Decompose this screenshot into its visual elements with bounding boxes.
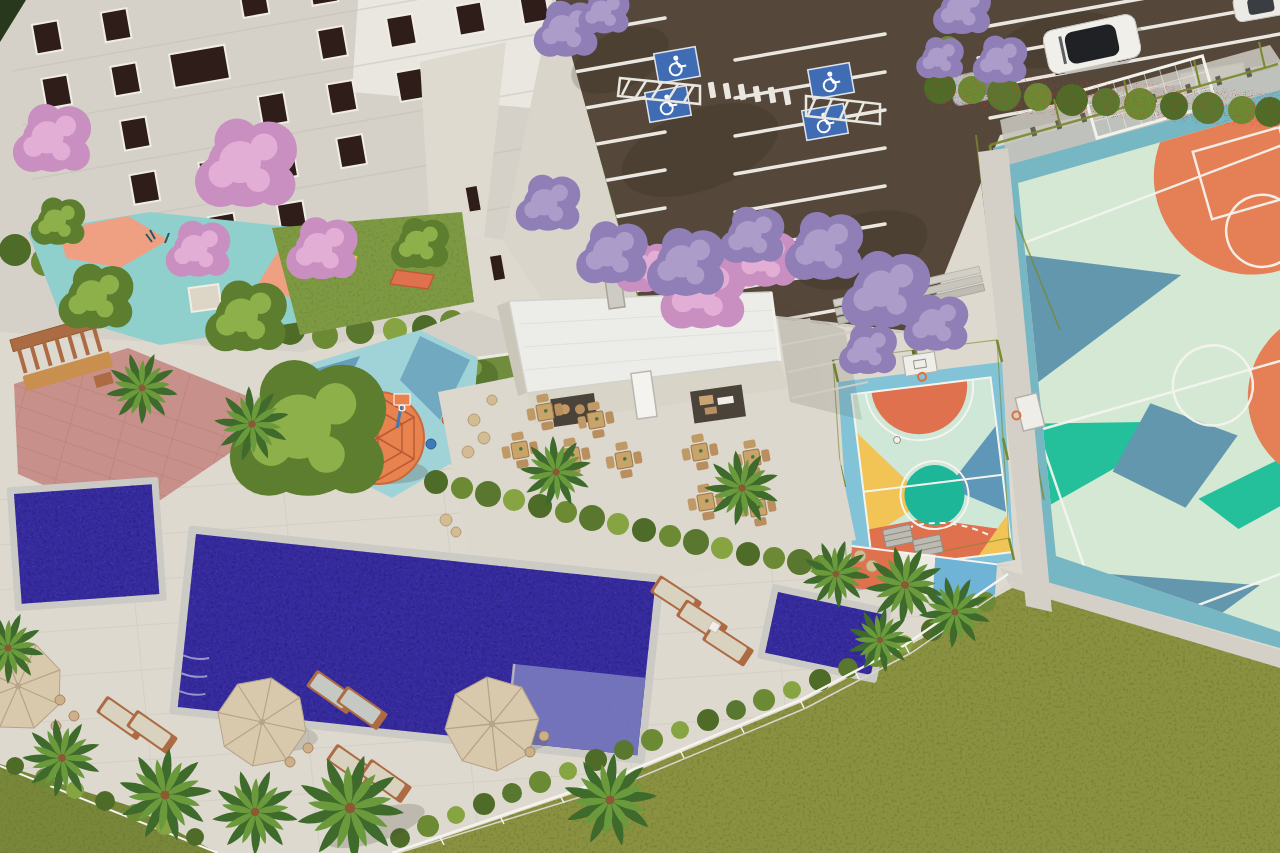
purple-tree [933, 0, 991, 34]
handicap-space-marking [802, 104, 849, 141]
window [41, 75, 72, 109]
window [327, 80, 358, 114]
window [317, 26, 348, 60]
aerial-render [0, 0, 1280, 853]
spring-rider [426, 439, 436, 449]
window [110, 62, 141, 96]
handicap-space-marking [654, 47, 701, 84]
handicap-space-marking [808, 63, 855, 100]
window [258, 92, 289, 126]
soccer-ball [894, 437, 901, 444]
window [129, 171, 160, 205]
clubhouse [438, 277, 878, 585]
window [455, 2, 486, 36]
window [120, 117, 151, 151]
toy-hoop-board [394, 394, 410, 405]
window [101, 8, 132, 42]
window [336, 134, 367, 168]
window [386, 14, 417, 48]
handicap-space-marking [645, 86, 692, 123]
sandbox [188, 284, 221, 312]
window [239, 0, 270, 18]
kids-pool [7, 477, 167, 611]
window [32, 20, 63, 54]
